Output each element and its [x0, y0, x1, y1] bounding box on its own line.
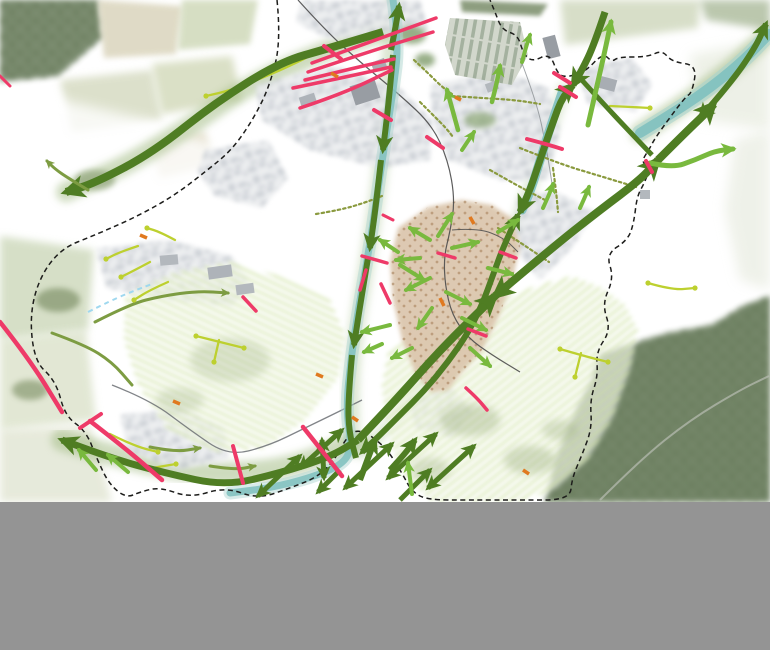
map-canvas: [0, 0, 770, 502]
field-green-1: [178, 0, 258, 50]
garden-estate-rows: [445, 18, 528, 85]
vine-shadow: [504, 446, 556, 474]
slope-double-arrow: [322, 440, 324, 478]
wood-patch: [36, 288, 80, 312]
vine-shadow: [542, 420, 578, 440]
field-tan-1: [98, 0, 182, 58]
oldtown-arrow: [396, 258, 420, 260]
field-west-1: [0, 236, 94, 340]
planning-map: [0, 0, 770, 502]
gray-footer-bar: [0, 502, 770, 650]
big-building: [640, 190, 650, 199]
big-building: [160, 254, 179, 266]
wood-patch: [464, 112, 496, 128]
vine-shadow: [440, 404, 500, 436]
screenshot-stage: [0, 0, 770, 650]
vine-shadow: [156, 388, 204, 412]
